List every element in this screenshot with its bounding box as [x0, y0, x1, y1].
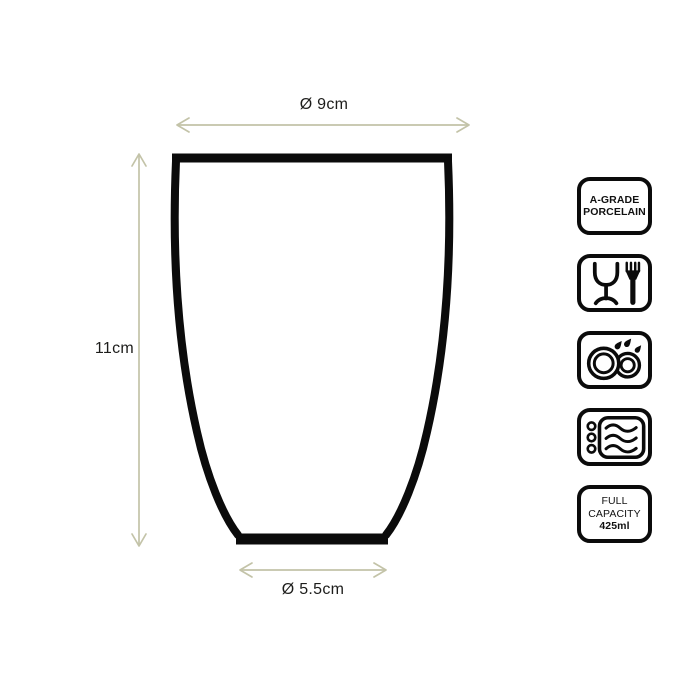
- dishwasher-safe-badge: [577, 331, 652, 389]
- top-diameter-label: Ø 9cm: [234, 96, 414, 114]
- porcelain-badge-line2: PORCELAIN: [583, 206, 646, 219]
- porcelain-grade-badge: A-GRADE PORCELAIN: [577, 177, 652, 235]
- cup-left-wall: [175, 161, 238, 535]
- cup-right-wall: [386, 161, 449, 535]
- microwave-waves-icon: [583, 414, 647, 461]
- height-label: 11cm: [50, 340, 134, 358]
- height-arrow: [132, 154, 146, 546]
- glass-and-fork-icon: [583, 260, 647, 307]
- capacity-badge: FULL CAPACITY 425ml: [577, 485, 652, 543]
- base-width-arrow: [240, 563, 386, 577]
- top-width-arrow: [177, 118, 469, 132]
- capacity-badge-line3: 425ml: [599, 520, 629, 533]
- product-dimension-diagram: Ø 9cm 11cm Ø 5.5cm A-GRADE PORCELAIN: [0, 0, 700, 700]
- capacity-badge-line2: CAPACITY: [588, 508, 641, 521]
- water-drops-icon: [613, 337, 643, 354]
- dishwasher-plates-icon: [583, 337, 647, 384]
- base-diameter-label: Ø 5.5cm: [233, 581, 393, 599]
- cup-outline: [172, 158, 452, 539]
- food-safe-badge: [577, 254, 652, 312]
- microwave-safe-badge: [577, 408, 652, 466]
- porcelain-badge-line1: A-GRADE: [590, 194, 640, 207]
- capacity-badge-line1: FULL: [601, 495, 627, 508]
